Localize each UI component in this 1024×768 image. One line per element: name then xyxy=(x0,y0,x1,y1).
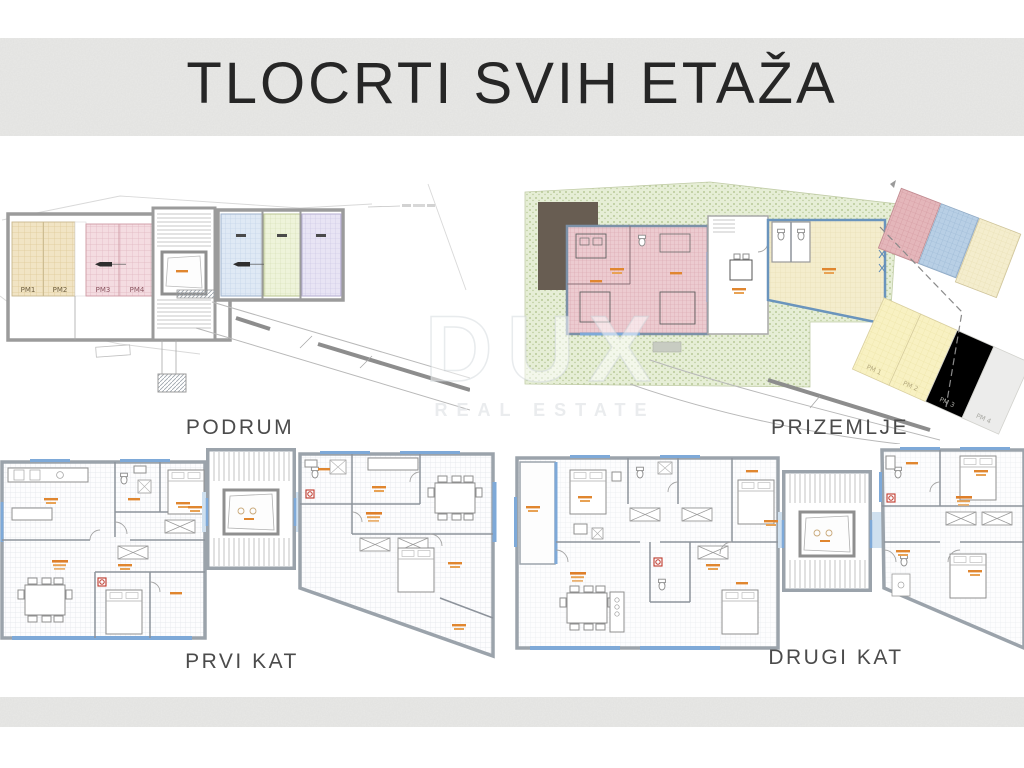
toilet-icon xyxy=(639,235,646,246)
prizemlje-terrace-slab xyxy=(653,342,681,352)
page-title: TLOCRTI SVIH ETAŽA xyxy=(0,50,1024,117)
parking-stall-label: PM1 xyxy=(21,286,36,294)
toilet-icon xyxy=(312,467,319,478)
drugikat-left-apartment xyxy=(516,457,779,649)
wardrobe xyxy=(118,546,148,559)
room-label xyxy=(170,592,182,594)
prizemlje-upper-parking xyxy=(877,188,1021,297)
bed xyxy=(398,548,434,592)
floor-label-drugi-kat: DRUGI KAT xyxy=(768,646,903,670)
prizemlje-entry xyxy=(708,216,768,334)
room-label xyxy=(318,468,330,470)
bed xyxy=(960,456,996,500)
bed xyxy=(722,590,758,634)
toilet-icon xyxy=(901,555,908,566)
floor-plan-podrum: PM1 PM2 PM3 PM4 xyxy=(0,178,470,420)
drugikat-stair-core xyxy=(764,472,882,591)
podrum-right-wing xyxy=(218,210,343,300)
footer-noise-texture xyxy=(0,697,1024,727)
room-label xyxy=(746,470,758,472)
podrum-parking-tan: PM1 PM2 xyxy=(12,222,75,296)
footer-band xyxy=(0,697,1024,727)
toilet-icon xyxy=(798,229,805,240)
parking-stall-label: PM3 xyxy=(96,286,111,294)
drugikat-right-apartment xyxy=(881,449,1024,649)
toilet-icon xyxy=(637,467,644,478)
wardrobe xyxy=(165,520,195,533)
toilet-icon xyxy=(778,229,785,240)
wardrobe xyxy=(682,508,712,521)
prvikat-right-apartment xyxy=(300,453,495,657)
bed xyxy=(950,554,986,598)
slide: TLOCRTI SVIH ETAŽA PM1 PM2 PM3 xyxy=(0,0,1024,768)
room-label xyxy=(736,582,748,584)
dining-table xyxy=(560,586,614,630)
floor-label-podrum: PODRUM xyxy=(186,416,294,440)
parking-stall-label: PM4 xyxy=(130,286,145,294)
room-label xyxy=(906,462,918,464)
floor-label-prvi-kat: PRVI KAT xyxy=(185,650,299,674)
bed xyxy=(570,470,606,514)
boundary-arrow xyxy=(890,180,896,188)
parking-stall-label: PM2 xyxy=(53,286,68,294)
wardrobe xyxy=(946,512,976,525)
toilet-icon xyxy=(895,467,902,478)
toilet-icon xyxy=(121,473,128,484)
wardrobe xyxy=(698,546,728,559)
prvikat-left-apartment xyxy=(2,461,205,639)
floor-plan-prvi-kat xyxy=(0,442,500,660)
room-label xyxy=(128,498,140,500)
room-label xyxy=(176,270,188,272)
wardrobe xyxy=(982,512,1012,525)
floor-plan-drugi-kat xyxy=(510,442,1024,662)
prizemlje-apartment xyxy=(567,226,708,334)
wardrobe xyxy=(630,508,660,521)
toilet-icon xyxy=(659,579,666,590)
bed xyxy=(738,480,774,524)
room-label xyxy=(590,280,602,282)
floor-plan-prizemlje: PM 1 PM 2 PM 3 PM 4 xyxy=(510,172,1024,444)
dining-table xyxy=(18,578,72,622)
floor-label-prizemlje: PRIZEMLJE xyxy=(771,416,909,440)
podrum-stair-core xyxy=(153,208,215,392)
dining-table xyxy=(428,476,482,520)
podrum-parking-pink: PM3 PM4 xyxy=(86,224,152,296)
wardrobe xyxy=(360,538,390,551)
room-label xyxy=(670,272,682,274)
bed xyxy=(106,590,142,634)
